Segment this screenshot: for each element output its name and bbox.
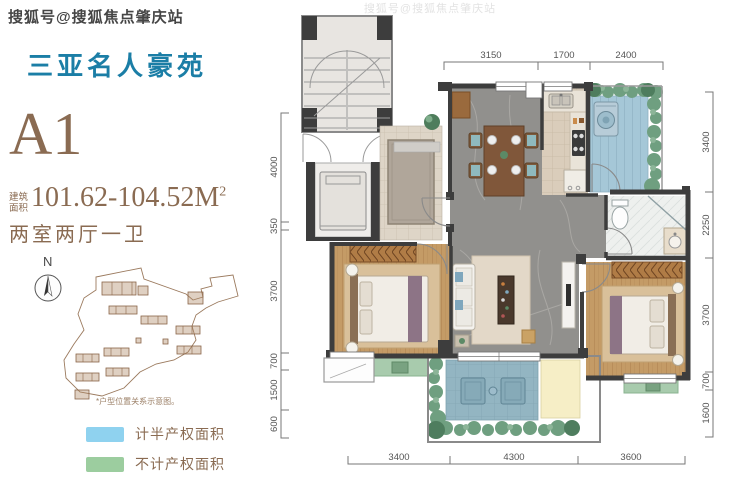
dim-right-4: 1600 xyxy=(701,402,712,423)
dim-top-0: 3150 xyxy=(480,50,501,61)
dim-bottom-2: 3600 xyxy=(620,452,641,463)
dim-top-2: 2400 xyxy=(615,50,636,61)
wardrobe-right xyxy=(612,262,682,278)
dim-right-0: 3400 xyxy=(701,131,712,152)
toilet xyxy=(612,207,628,229)
wardrobe-left xyxy=(350,244,416,262)
bay-window xyxy=(324,358,374,382)
ac-platform-left xyxy=(374,358,428,376)
dim-left-2: 3700 xyxy=(269,280,280,301)
dim-left-5: 600 xyxy=(269,416,280,432)
floorplan-page: 搜狐号@搜狐焦点肇庆站 三亚名人豪苑 A1 建筑 面积 101.62-104.5… xyxy=(0,0,740,492)
kitchen-cabinet xyxy=(564,170,586,192)
dimension-top: 3150 1700 2400 xyxy=(444,50,663,70)
dimension-left: 4000 350 3700 700 1500 600 xyxy=(269,113,289,438)
shoe-cabinet xyxy=(452,92,470,118)
nightstand-lamp xyxy=(346,264,358,276)
dim-left-1: 350 xyxy=(269,218,280,234)
foyer-rug xyxy=(388,140,434,224)
stool xyxy=(522,330,535,343)
tv xyxy=(566,284,571,306)
dimension-right: 3400 2250 3700 700 1600 xyxy=(701,92,713,437)
toilet-tank xyxy=(612,200,628,206)
balcony-yellow-pane xyxy=(541,360,580,418)
dim-right-1: 2250 xyxy=(701,214,712,235)
dim-left-0: 4000 xyxy=(269,156,280,177)
dimension-bottom: 3400 4300 3600 xyxy=(348,452,685,464)
bed-runner-right xyxy=(610,296,622,354)
dim-left-3: 700 xyxy=(269,353,280,369)
elevator xyxy=(306,162,380,241)
exterior-ledge xyxy=(394,142,440,152)
landing-doors xyxy=(303,134,391,162)
dim-right-3: 700 xyxy=(701,373,712,389)
coffee-table xyxy=(498,276,514,324)
washing-machine xyxy=(594,102,618,136)
nightstand-lamp xyxy=(673,283,684,294)
nightstand-lamp xyxy=(673,355,684,366)
duct-notch xyxy=(526,82,542,98)
headboard-right xyxy=(668,294,676,356)
headboard-left xyxy=(350,274,358,344)
faint-watermark: 搜狐号@搜狐焦点肇庆站 xyxy=(364,1,496,15)
stairwell xyxy=(302,16,392,132)
floor-plan: 搜狐号@搜狐焦点肇庆站 xyxy=(0,0,740,492)
dim-left-4: 1500 xyxy=(269,379,280,400)
dim-bottom-1: 4300 xyxy=(503,452,524,463)
porch-plant xyxy=(424,114,440,130)
bath-sink xyxy=(669,236,681,248)
dim-right-2: 3700 xyxy=(701,304,712,325)
porch-plant-highlight xyxy=(426,116,433,123)
stove xyxy=(572,130,585,156)
dim-top-1: 1700 xyxy=(553,50,574,61)
bed-runner-left xyxy=(408,276,422,342)
balcony-table xyxy=(489,387,497,395)
dim-bottom-0: 3400 xyxy=(388,452,409,463)
